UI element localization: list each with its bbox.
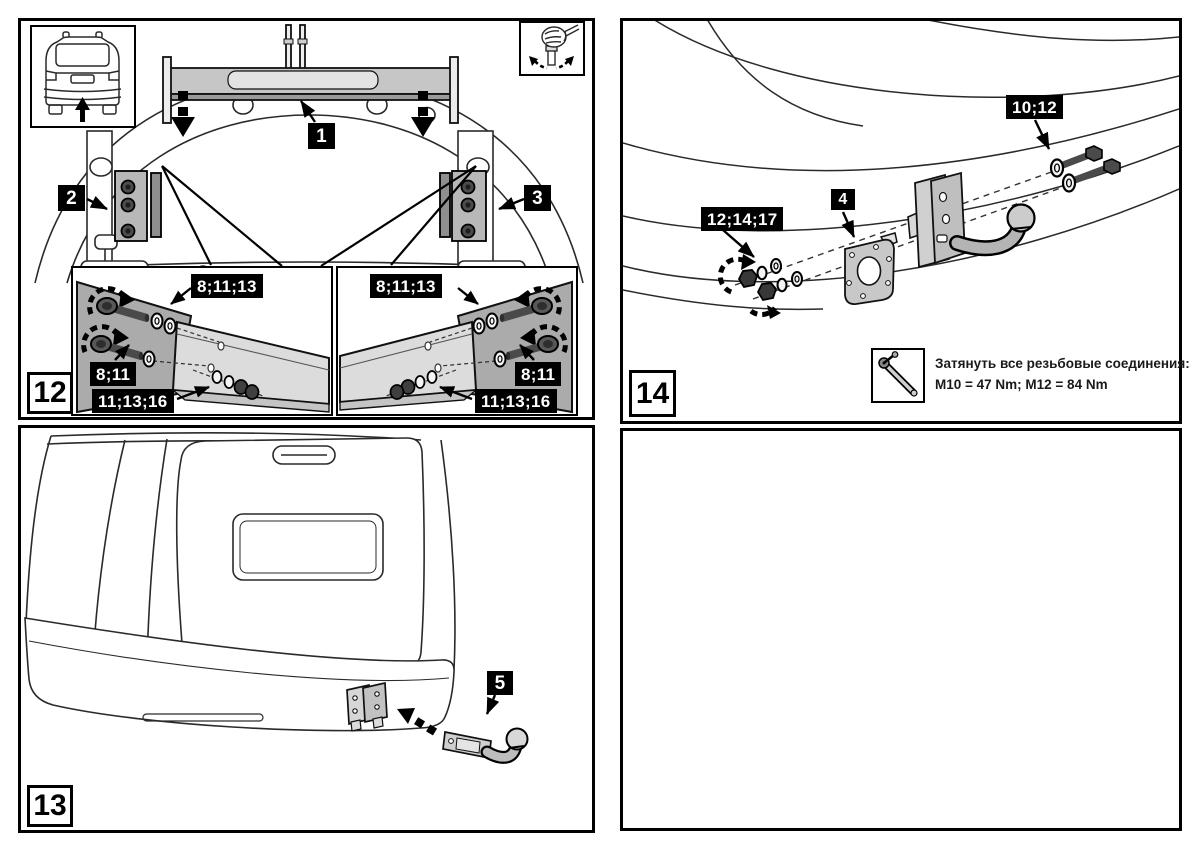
callout-label-nuts: 12;14;17 — [701, 207, 783, 231]
callout-label-ball-arm: 5 — [487, 671, 513, 695]
detail-inset-right: 8;11;13 8;11 11;13;16 — [336, 266, 578, 416]
torque-instruction-line1: Затянуть все резьбовые соединения: — [935, 353, 1190, 374]
callout-label-bolt-side-right: 8;11 — [515, 362, 561, 386]
crossbar-part — [163, 25, 458, 123]
callout-arrow-ball-arm — [487, 695, 495, 714]
step-number-14: 14 — [629, 370, 676, 417]
callout-label-right-bracket: 3 — [524, 185, 551, 211]
detail-inset-left: 8;11;13 8;11 11;13;16 — [71, 266, 333, 416]
torque-values-line2: M10 = 47 Nm; M12 = 84 Nm — [935, 374, 1108, 395]
car-rear-view-drawing — [32, 27, 133, 125]
callout-label-bolt-side-left: 8;11 — [90, 362, 136, 386]
callout-label-crossbar: 1 — [308, 123, 335, 149]
instruction-page: 8;11;13 8;11 11;13;16 — [0, 0, 1200, 849]
callout-label-bolts: 10;12 — [1006, 95, 1063, 119]
step13-illustration — [21, 428, 592, 830]
torque-wrench-icon — [871, 348, 925, 403]
detail-callout-lines — [162, 166, 476, 266]
callout-label-nuts-bottom-right: 11;13;16 — [475, 389, 557, 413]
callout-label-bolts-top-left: 8;11;13 — [191, 274, 263, 298]
step-number-13: 13 — [27, 785, 73, 827]
bumper-outline — [623, 21, 1179, 309]
step-number-12: 12 — [27, 372, 73, 414]
callout-label-nuts-bottom-left: 11;13;16 — [92, 389, 174, 413]
empty-panel — [620, 428, 1182, 831]
hand-tighten-drawing — [521, 23, 582, 73]
car-rear-view-icon — [30, 25, 136, 128]
torque-wrench-drawing — [873, 350, 923, 401]
callout-label-left-bracket: 2 — [58, 185, 85, 211]
hand-tighten-icon — [519, 21, 585, 76]
step-13-panel: 5 13 — [18, 425, 595, 833]
callout-label-bolts-top-right: 8;11;13 — [370, 274, 442, 298]
left-bracket-part — [115, 171, 161, 241]
bolts-washers-group — [1051, 146, 1120, 192]
step-14-panel: 10;12 4 12;14;17 Затянуть все резьбовые … — [620, 18, 1182, 424]
callout-label-socket-plate: 4 — [831, 189, 855, 210]
car-rear-outline — [25, 433, 455, 731]
towball-arm-drawing — [443, 729, 528, 759]
step-12-panel: 8;11;13 8;11 11;13;16 — [18, 18, 595, 420]
